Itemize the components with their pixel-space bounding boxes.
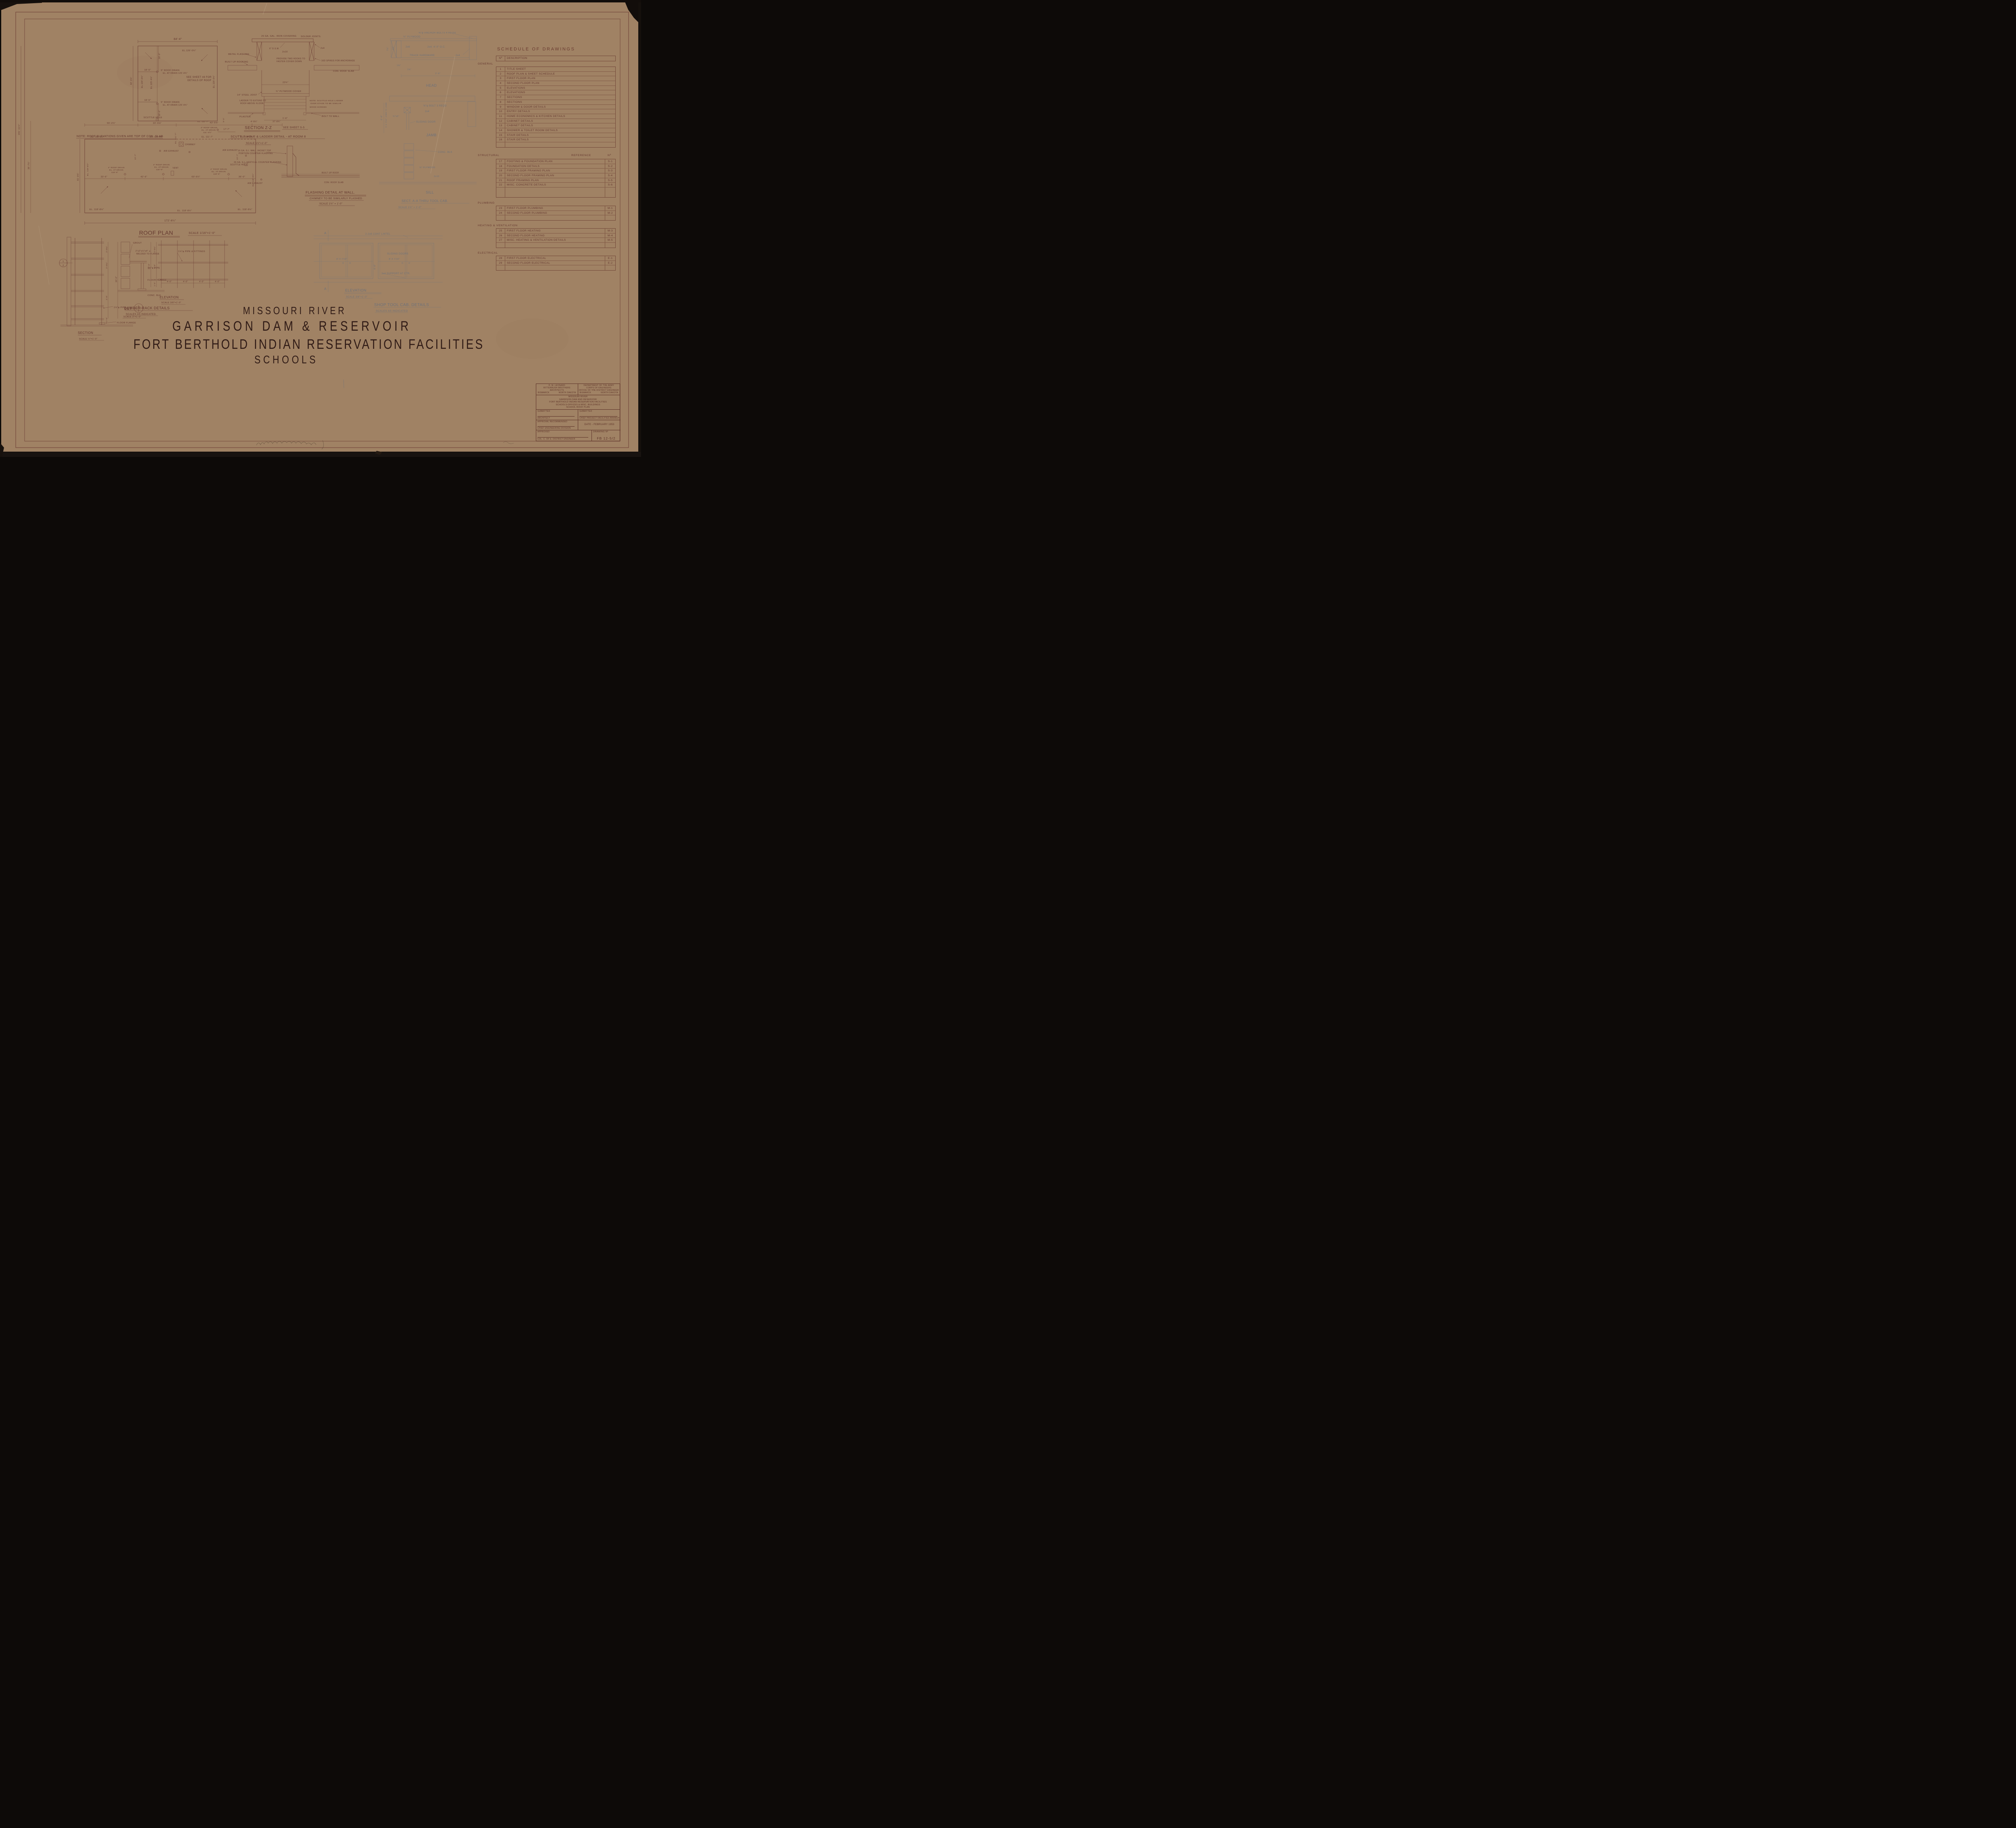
annotation: WOOD SCREWS bbox=[310, 106, 327, 108]
elevation-label: EL. 111'-7" bbox=[202, 136, 213, 138]
schedule-general-box: 1TITLE SHEET 2ROOF PLAN & SHEET SCHEDULE… bbox=[496, 67, 616, 148]
row-desc: FIRST FLOOR ELECTRICAL bbox=[505, 256, 605, 261]
annotation: SOLDER JOINTS. bbox=[301, 35, 321, 38]
row-no bbox=[496, 215, 505, 220]
schedule-row: 1TITLE SHEET bbox=[496, 67, 615, 72]
elevation-label: EL. 118'-8½" bbox=[177, 209, 192, 212]
approval-cell: APPROVAL RECOMMENDED CHIEF ENGINEERING D… bbox=[536, 420, 578, 430]
schedule-header: Nº DESCRIPTION bbox=[496, 56, 616, 61]
lumber-rack-scale: SCALES AS INDICATED. bbox=[126, 313, 156, 316]
main-title-line4: SCHOOLS bbox=[254, 353, 318, 366]
dim-label: 10'-0" bbox=[115, 276, 118, 282]
annotation: 2-2x6 CONT LINTEL bbox=[365, 233, 391, 236]
row-no: 20 bbox=[496, 173, 505, 178]
date-cell: DATE - FEBRUARY 1953 bbox=[578, 420, 621, 430]
annotation: ¾" PLYWOOD COVER bbox=[276, 90, 301, 93]
schedule-row: 9WINDOW & DOOR DETAILS bbox=[496, 105, 615, 110]
dim-label: 17'-7" bbox=[223, 128, 229, 131]
tool-cab-elevation-drawing bbox=[314, 230, 443, 313]
row-desc: FIRST FLOOR PLAN bbox=[505, 76, 615, 81]
row-no: 11 bbox=[496, 114, 505, 119]
row-desc bbox=[505, 188, 605, 197]
roof-drain-label: 4" ROOF DRAIN bbox=[108, 167, 125, 169]
row-desc: STAIR DETAILS bbox=[505, 138, 615, 142]
main-title-line2: GARRISON DAM & RESERVOIR bbox=[172, 319, 411, 334]
roof-drain-label: 5" ROOF DRAIN bbox=[161, 69, 179, 72]
annotation: 2x4 bbox=[321, 47, 325, 50]
project-line: GARRISON DAM AND RESERVOIR bbox=[536, 398, 620, 401]
see-sheet-note: DETAILS OF ROOF bbox=[187, 79, 212, 82]
row-no bbox=[496, 142, 505, 147]
schedule-row: 27MISC. HEATING & VENTILATION DETAILSM-5 bbox=[496, 238, 615, 243]
dim-label: 56'-2¼" bbox=[107, 122, 115, 125]
row-no: 1 bbox=[496, 67, 505, 71]
row-no: 6 bbox=[496, 90, 505, 95]
dim-label: 30'-9⅛" bbox=[153, 122, 161, 125]
annotation: 26 GA. G.I. VERTICAL COUNTER FLASHING bbox=[234, 161, 281, 164]
row-ref bbox=[605, 188, 615, 197]
schedule-section-heating: HEATING & VENTILATION bbox=[478, 223, 518, 228]
dim-label: 18'-5" bbox=[144, 69, 151, 71]
sheet-subject: SCHOOL ROOF PLAN bbox=[536, 406, 620, 409]
row-no: 12 bbox=[496, 119, 505, 123]
row-desc: SECOND FLOOR PLAN bbox=[505, 81, 615, 85]
dim-label: 43'-0⅞" bbox=[210, 122, 218, 124]
schedule-section-general: GENERAL bbox=[478, 62, 493, 67]
dim-label: 6'-8" bbox=[381, 115, 383, 120]
annotation: GROUT bbox=[133, 242, 142, 244]
annotation: ROOF ABOVE FLOOR. bbox=[240, 102, 264, 105]
row-desc: ENTRY DETAILS bbox=[505, 109, 615, 114]
schedule-row: 12CABINET DETAILS bbox=[496, 119, 615, 124]
row-no: 25 bbox=[496, 229, 505, 233]
row-desc: FIRST FLOOR HEATING bbox=[505, 229, 605, 233]
flashing-detail-subtitle: CHIMNEY TO BE SIMILARLY FLASHED bbox=[310, 197, 362, 200]
title-block-signatures: SUBMITTED ARCHITECT SUBMITTED CHIEF PROJ… bbox=[536, 410, 620, 441]
elevation-label: EL.126'-0¾" bbox=[213, 75, 215, 88]
det-scale: SCALE 3"=1'-0" bbox=[123, 316, 141, 318]
row-ref: S-5 bbox=[605, 178, 615, 183]
roof-drain-label: EL. AT DRAIN 125'-4¾" bbox=[163, 104, 187, 106]
row-ref: E-1 bbox=[605, 256, 615, 261]
dim-label: 1⅜" bbox=[407, 69, 411, 71]
row-desc: TITLE SHEET bbox=[505, 67, 615, 71]
schedule-row: 18FOUNDATION DETAILSS-2 bbox=[496, 164, 615, 169]
approved-cell: APPROVED COL. C. OF E. DISTRICT ENGINEER bbox=[536, 430, 592, 441]
annotation: METAL FLASHING bbox=[228, 53, 249, 56]
row-no: 7 bbox=[496, 95, 505, 100]
dim-label: 2'-9" bbox=[154, 264, 156, 269]
sect-aa-scale: SCALE 1½" = 1'-0" bbox=[398, 206, 421, 209]
annotation: ¾"x5" bbox=[393, 115, 399, 118]
annotation: 16D SPIKES FOR ANCHORAGE bbox=[321, 60, 355, 62]
dim-label: 8'-3" bbox=[223, 118, 225, 122]
firm-state: NORTH DAKOTA bbox=[559, 392, 576, 394]
row-ref: M-4 bbox=[605, 233, 615, 238]
dim-label: 8'-4 7/16" bbox=[336, 258, 347, 261]
roof-drain-label: EL. AT DRAIN 125'-4¾" bbox=[163, 72, 187, 75]
dim-label: 4'-0" bbox=[167, 281, 172, 283]
row-no bbox=[496, 243, 505, 248]
drawing-no-label: DRAWING Nº bbox=[593, 431, 608, 433]
dim-label: 33'-6" bbox=[101, 176, 107, 178]
row-desc: HOME ECONOMICS & KITCHEN DETAILS bbox=[505, 114, 615, 119]
signature-line bbox=[537, 437, 588, 438]
dim-label: 2'-6" bbox=[435, 73, 441, 75]
elevation-label: EL. 118'-8½" bbox=[86, 163, 89, 176]
schedule-row-empty bbox=[496, 243, 615, 248]
row-ref bbox=[605, 265, 615, 270]
dim-label: 2'-0¾" bbox=[106, 262, 108, 269]
row-no: 21 bbox=[496, 178, 505, 183]
air-exhaust-label: AIR EXHAUST bbox=[248, 182, 263, 185]
firm-city: BISMARCK bbox=[538, 392, 550, 394]
shop-tool-cab-title: SHOP TOOL CAB. DETAILS bbox=[374, 303, 429, 307]
roof-drain-label: 118'-6" bbox=[156, 169, 163, 171]
row-desc: SECOND FLOOR ELECTRICAL bbox=[505, 261, 605, 265]
row-desc: ELEVATIONS bbox=[505, 90, 615, 95]
dim-label: 18'-0" bbox=[158, 53, 161, 59]
dim-label: 84'-4" bbox=[174, 38, 182, 41]
schedule-row: 23FIRST FLOOR PLUMBINGM-1 bbox=[496, 206, 615, 211]
dim-label: 4'-0" bbox=[215, 281, 220, 283]
row-desc: FIRST FLOOR PLUMBING bbox=[505, 206, 605, 211]
dim-label: 1'-5" bbox=[154, 282, 156, 286]
annotation: 6" D.S.M. bbox=[269, 48, 279, 50]
schedule-row: 5ELEVATIONS bbox=[496, 86, 615, 91]
schedule-row: 19FIRST FLOOR FRAMING PLANS-3 bbox=[496, 169, 615, 173]
dim-label: 1'-5" bbox=[106, 317, 108, 322]
schedule-ref-no: Nº bbox=[608, 153, 611, 158]
row-ref: S-6 bbox=[605, 183, 615, 187]
see-sheet-note: SEE SHEET #8 FOR bbox=[186, 76, 212, 79]
row-no: 10 bbox=[496, 109, 505, 114]
schedule-row: 16STAIR DETAILS bbox=[496, 138, 615, 142]
signature-line bbox=[537, 426, 575, 427]
flashing-detail-title: FLASHING DETAIL AT WALL. bbox=[306, 190, 355, 194]
row-desc bbox=[505, 142, 615, 147]
schedule-structural-box: 17FOOTING & FOUNDATION PLANS-1 18FOUNDAT… bbox=[496, 159, 616, 198]
row-no bbox=[496, 265, 505, 270]
roof-drain-label: EL. AT DRAIN bbox=[212, 171, 226, 173]
schedule-row: 3FIRST FLOOR PLAN bbox=[496, 76, 615, 81]
dim-label: 4'-0" bbox=[199, 281, 204, 283]
row-ref bbox=[605, 243, 615, 248]
annotation: FASTEN COVER DOWN bbox=[277, 60, 302, 63]
row-ref: M-2 bbox=[605, 211, 615, 215]
schedule-row: 2ROOF PLAN & SHEET SCHEDULE bbox=[496, 72, 615, 77]
annotation: FLOOR FLANGE bbox=[148, 279, 167, 281]
dim-label: 2'-0¾" bbox=[154, 246, 156, 252]
annotation: WELDED TO FLANGE bbox=[136, 253, 160, 255]
section-marker: A bbox=[324, 287, 327, 291]
row-ref bbox=[605, 215, 615, 220]
annotation: CONC. BLK bbox=[438, 151, 452, 154]
schedule-row: 29SECOND FLOOR ELECTRICALE-2 bbox=[496, 261, 615, 266]
roof-plan-title: ROOF PLAN bbox=[139, 229, 173, 236]
annotation: PROVIDE TWO HOOKS TO bbox=[277, 58, 305, 60]
row-desc: ELEVATIONS bbox=[505, 86, 615, 90]
row-desc: ROOF PLAN & SHEET SCHEDULE bbox=[505, 72, 615, 76]
row-ref: S-1 bbox=[605, 159, 615, 164]
flashing-detail-scale: SCALE 1½" = 1'-0" bbox=[319, 202, 342, 205]
signature-line bbox=[579, 416, 617, 417]
title-block-project: MISSOURI RIVER GARRISON DAM AND RESERVOI… bbox=[536, 395, 620, 410]
annotation: 16 GA. G.I. WALL JACKET TOP bbox=[238, 150, 271, 152]
title-block-firms: H. M. LEONARD RITTERBUSH BROTHERS ARCHIT… bbox=[536, 384, 620, 395]
roof-drain-label: 3" ROOF DRAIN bbox=[201, 127, 217, 129]
army-office: DEPARTMENT OF THE ARMY CORPS OF ENGINEER… bbox=[578, 384, 620, 395]
schedule-title: SCHEDULE OF DRAWINGS bbox=[497, 47, 575, 52]
row-no: 19 bbox=[496, 169, 505, 173]
row-no: 24 bbox=[496, 211, 505, 215]
head-title: HEAD bbox=[426, 83, 437, 88]
row-no: 3 bbox=[496, 76, 505, 81]
dim-label: 10'-0" bbox=[148, 263, 150, 269]
schedule-row: 14SHOWER & TOILET ROOM DETAILS bbox=[496, 128, 615, 133]
dim-label: 8'-4 7/16" bbox=[389, 258, 400, 261]
roof-drain-label: EL. AT DRAIN bbox=[109, 169, 123, 171]
elevation-title: ELEVATION bbox=[160, 296, 179, 299]
row-desc bbox=[505, 215, 605, 220]
chimney-label: CHIMNEY bbox=[185, 144, 196, 146]
annotation: PORTION COUNTER FLASHING bbox=[239, 152, 273, 155]
detail-marker: 1 bbox=[62, 261, 64, 263]
section-zz-subtitle: SCUTTLE HOLE & LADDER DETAIL - AT ROOM 8 bbox=[231, 135, 306, 138]
roof-drain-label: 118'-6" bbox=[111, 171, 118, 174]
schedule-row: 20SECOND FLOOR FRAMING PLANS-4 bbox=[496, 173, 615, 178]
annotation: BUILT UP ROOF bbox=[322, 172, 339, 174]
dim-label: 60'-6¼" bbox=[192, 176, 200, 178]
schedule-row: 11HOME ECONOMICS & KITCHEN DETAILS bbox=[496, 114, 615, 119]
chief-project-label: CHIEF PROJECT FACILITIES BRANCH bbox=[579, 417, 619, 419]
submitted-label: SUBMITTED bbox=[579, 410, 592, 413]
dim-label: 5'-4 7/16" JAMB TO JAMB bbox=[385, 102, 387, 127]
schedule-row-empty bbox=[496, 142, 615, 147]
elevation-scale: SCALE 3/8"=1'-0" bbox=[161, 302, 181, 304]
elevation-label: EL. 111'-7" bbox=[175, 133, 177, 144]
architect-firm: H. M. LEONARD RITTERBUSH BROTHERS ARCHIT… bbox=[536, 384, 578, 395]
schedule-electrical-box: 28FIRST FLOOR ELECTRICALE-1 29SECOND FLO… bbox=[496, 256, 616, 271]
row-desc: CABINET DETAILS bbox=[505, 123, 615, 128]
row-desc: ROOF FRAMING PLAN bbox=[505, 178, 605, 183]
drawing-number-cell: DRAWING Nº FB 12-5/2 bbox=[592, 430, 621, 441]
schedule-row: 6ELEVATIONS bbox=[496, 90, 615, 95]
roof-plan-note: NOTE: ROOF ELEVATIONS GIVEN ARE TOP OF C… bbox=[77, 135, 163, 138]
annotation: 2x4. 4'-0" O.C. bbox=[427, 46, 446, 48]
annotation: 1½"φ PIPE & FITTINGS bbox=[178, 250, 205, 253]
district-engineer-label: COL. C. OF E. DISTRICT ENGINEER bbox=[537, 438, 575, 440]
row-no: 18 bbox=[496, 164, 505, 169]
row-no: 28 bbox=[496, 256, 505, 261]
row-no: 5 bbox=[496, 86, 505, 90]
roof-plan-scale: SCALE 1/16"=1'-0" bbox=[189, 232, 215, 235]
row-desc: SECOND FLOOR FRAMING PLAN bbox=[505, 173, 605, 178]
row-desc: MISC. HEATING & VENTILATION DETAILS bbox=[505, 238, 605, 242]
flashing-detail-drawing bbox=[266, 146, 366, 206]
row-no: 15 bbox=[496, 133, 505, 138]
row-no: 26 bbox=[496, 233, 505, 238]
dim-label: 1⅜" bbox=[397, 65, 401, 67]
approved-label: APPROVED bbox=[537, 431, 550, 433]
dim-label: 18'-0" bbox=[158, 110, 161, 116]
annotation: 2x4 bbox=[456, 54, 460, 57]
annotation: LADDER TO EXTEND TO bbox=[240, 100, 266, 102]
annotation: 2x10 bbox=[434, 175, 439, 178]
annotation: ⅜"φ ANCHOR BOLTS 4 REQD bbox=[419, 32, 456, 34]
row-ref: M-1 bbox=[605, 206, 615, 211]
annotation: FLOOR FLANGE bbox=[117, 322, 136, 324]
row-no: 4 bbox=[496, 81, 505, 85]
row-no: 17 bbox=[496, 159, 505, 164]
dim-label: 38'-7¼" bbox=[28, 161, 30, 169]
row-desc: CABINET DETAILS bbox=[505, 119, 615, 123]
row-no: 9 bbox=[496, 105, 505, 109]
schedule-ref-label: REFERENCE bbox=[571, 153, 591, 158]
signature-line bbox=[537, 416, 575, 417]
schedule-row-empty bbox=[496, 265, 615, 270]
section-zz-title: SECTION Z-Z bbox=[245, 126, 272, 130]
shop-tool-cab-scale: SCALES AS INDICATED bbox=[376, 310, 408, 313]
dim-label: 1⅜" bbox=[392, 46, 394, 50]
dim-label: 37'-8¾" bbox=[273, 121, 281, 123]
schedule-section-plumbing: PLUMBING bbox=[478, 201, 495, 206]
row-no: 8 bbox=[496, 100, 505, 104]
annotation: ⅝" PLYWOOD bbox=[419, 167, 435, 169]
annotation: NOTE: SCUTTLE HOLE LADDER bbox=[310, 100, 343, 102]
scuttle-label: SCUTTLE HOLE bbox=[230, 164, 248, 166]
schedule-row: 21ROOF FRAMING PLANS-5 bbox=[496, 178, 615, 183]
annotation: BOLT TO WALL bbox=[322, 115, 339, 118]
row-no: 22 bbox=[496, 183, 505, 187]
annotation: OVER STAGE TO BE SIMILAR bbox=[310, 102, 342, 105]
project-line: SCHOOLS-OFFICES & MISC. BUILDINGS bbox=[536, 404, 620, 406]
title-block: H. M. LEONARD RITTERBUSH BROTHERS ARCHIT… bbox=[536, 384, 620, 441]
row-ref: S-4 bbox=[605, 173, 615, 178]
row-ref: S-2 bbox=[605, 164, 615, 169]
annotation: CON. ROOF SLAB bbox=[333, 70, 354, 73]
annotation: CONC. BLK bbox=[148, 294, 161, 297]
section-zz-see: SEE SHEET S-5 bbox=[283, 126, 305, 129]
row-desc: SECOND FLOOR HEATING bbox=[505, 233, 605, 238]
row-no: 29 bbox=[496, 261, 505, 265]
dim-label: 22¾" bbox=[283, 81, 288, 84]
dim-label: 18'-5" bbox=[144, 99, 151, 102]
main-title-line1: MISSOURI RIVER bbox=[243, 304, 347, 317]
schedule-section-electrical: ELECTRICAL bbox=[478, 251, 498, 256]
sect-aa-title: SECT. A-A THRU TOOL CAB. bbox=[402, 199, 448, 203]
schedule-row: 7SECTIONS bbox=[496, 95, 615, 100]
section-zz-scale: SCALE 1½"=1'-0" bbox=[246, 142, 267, 145]
submitted-architect-cell: SUBMITTED ARCHITECT bbox=[536, 410, 578, 420]
scuttle-label: SCUTTLE HOLE bbox=[144, 117, 162, 119]
row-desc: FOOTING & FOUNDATION PLAN bbox=[505, 159, 605, 164]
schedule-row: 8SECTIONS bbox=[496, 100, 615, 105]
roof-drain-label: EL. AT DRAIN bbox=[202, 129, 216, 131]
annotation: PLASTER bbox=[240, 116, 251, 118]
section-zz-labels: 26 GA. GAL. IRON COVERING SOLDER JOINTS.… bbox=[225, 35, 355, 145]
dim-label: 4'-9¼" bbox=[251, 121, 258, 123]
air-exhaust-label: AIR EXHAUST bbox=[223, 149, 238, 152]
approval-label: APPROVAL RECOMMENDED bbox=[537, 421, 567, 423]
vent-label: VENT bbox=[173, 167, 179, 169]
schedule-row: 26SECOND FLOOR HEATINGM-4 bbox=[496, 233, 615, 238]
dim-label: 42'-6" bbox=[141, 176, 147, 178]
row-no: 14 bbox=[496, 128, 505, 133]
annotation: SLIDING DOOR bbox=[416, 121, 436, 123]
main-title-line3: FORT BERTHOLD INDIAN RESERVATION FACILIT… bbox=[133, 337, 484, 352]
date-label: DATE - FEBRUARY 1953 bbox=[584, 423, 614, 426]
row-no: 16 bbox=[496, 138, 505, 142]
agency-state: NORTH DAKOTA bbox=[601, 392, 618, 394]
row-desc: WINDOW & DOOR DETAILS bbox=[505, 105, 615, 109]
section-scale: SCALE ½"=1'-0" bbox=[79, 338, 98, 340]
row-no bbox=[496, 188, 505, 197]
row-no: 23 bbox=[496, 206, 505, 211]
schedule-plumbing-box: 23FIRST FLOOR PLUMBINGM-1 24SECOND FLOOR… bbox=[496, 206, 616, 221]
row-desc bbox=[505, 265, 605, 270]
annotation: 2x4 SUPPORT AT CTR. bbox=[381, 273, 410, 275]
schedule-heating-box: 25FIRST FLOOR HEATINGM-3 26SECOND FLOOR … bbox=[496, 228, 616, 248]
dim-label: 172'-6¼" bbox=[165, 219, 176, 222]
row-desc: STAIR DETAILS bbox=[505, 133, 615, 138]
annotation: 2x4 bbox=[425, 110, 429, 113]
schedule-row: 10ENTRY DETAILS bbox=[496, 109, 615, 114]
annotation: ¾" PLYWOOD bbox=[403, 36, 421, 38]
submitted-chief-cell: SUBMITTED CHIEF PROJECT FACILITIES BRANC… bbox=[578, 410, 621, 420]
schedule-row: 22MISC. CONCRETE DETAILSS-6 bbox=[496, 183, 615, 188]
elevation-label: EL. 111'-7" bbox=[198, 121, 208, 123]
elevation-title: ELEVATION bbox=[345, 288, 367, 292]
submitted-label: SUBMITTED bbox=[537, 410, 550, 413]
schedule-row-empty bbox=[496, 188, 615, 197]
dim-label: 61'-0¾" bbox=[77, 173, 79, 181]
dim-label: 1'-6" bbox=[283, 117, 288, 120]
schedule-row: 28FIRST FLOOR ELECTRICALE-1 bbox=[496, 256, 615, 261]
project-line: MISSOURI RIVER bbox=[536, 396, 620, 398]
roof-drain-label: 4" ROOF DRAIN bbox=[210, 168, 227, 171]
row-desc: SECOND FLOOR PLUMBING bbox=[505, 211, 605, 215]
annotation: TRACK HARDWARE bbox=[410, 54, 435, 57]
elevation-label: EL. 118'-8½" bbox=[252, 173, 254, 186]
schedule-row: 17FOOTING & FOUNDATION PLANS-1 bbox=[496, 159, 615, 164]
dim-label: 6'-8" bbox=[374, 264, 376, 269]
row-no: 2 bbox=[496, 72, 505, 76]
dim-label: 4'-0" bbox=[183, 281, 188, 283]
row-no: 13 bbox=[496, 123, 505, 128]
dim-label: 36'-0" bbox=[239, 176, 245, 178]
sill-title: SILL bbox=[426, 190, 434, 194]
schedule-col-desc: DESCRIPTION bbox=[505, 56, 615, 61]
schedule-col-no: Nº bbox=[496, 56, 505, 61]
air-exhaust-label: AIR EXHAUST bbox=[164, 150, 179, 152]
drawing-sheet-photo: 84'-4" 18'-5" 18'-5" 18'-0" 18'-0" 5" RO… bbox=[0, 0, 641, 457]
drawing-number: FB 12-5/2 bbox=[592, 436, 621, 440]
row-desc bbox=[505, 243, 605, 248]
schedule-row: 24SECOND FLOOR PLUMBINGM-2 bbox=[496, 211, 615, 216]
annotation: BUILT UP ROOFING bbox=[225, 61, 248, 63]
schedule-row: 15STAIR DETAILS bbox=[496, 133, 615, 138]
schedule-row: 4SECOND FLOOR PLAN bbox=[496, 81, 615, 86]
annotation: ⅜"φ BOLT 3 REQD bbox=[423, 105, 447, 107]
row-desc: SECTIONS bbox=[505, 100, 615, 104]
jamb-title: JAMB bbox=[426, 133, 437, 137]
project-line: FORT BERTHOLD INDIAN RESERVATION FACILIT… bbox=[536, 401, 620, 404]
detail-marker: 2 bbox=[62, 265, 64, 267]
annotation: CON. ROOF SLAB bbox=[324, 181, 344, 184]
row-desc: FIRST FLOOR FRAMING PLAN bbox=[505, 169, 605, 173]
annotation: 2"x2"x¼"x4" ∠ bbox=[135, 250, 151, 252]
